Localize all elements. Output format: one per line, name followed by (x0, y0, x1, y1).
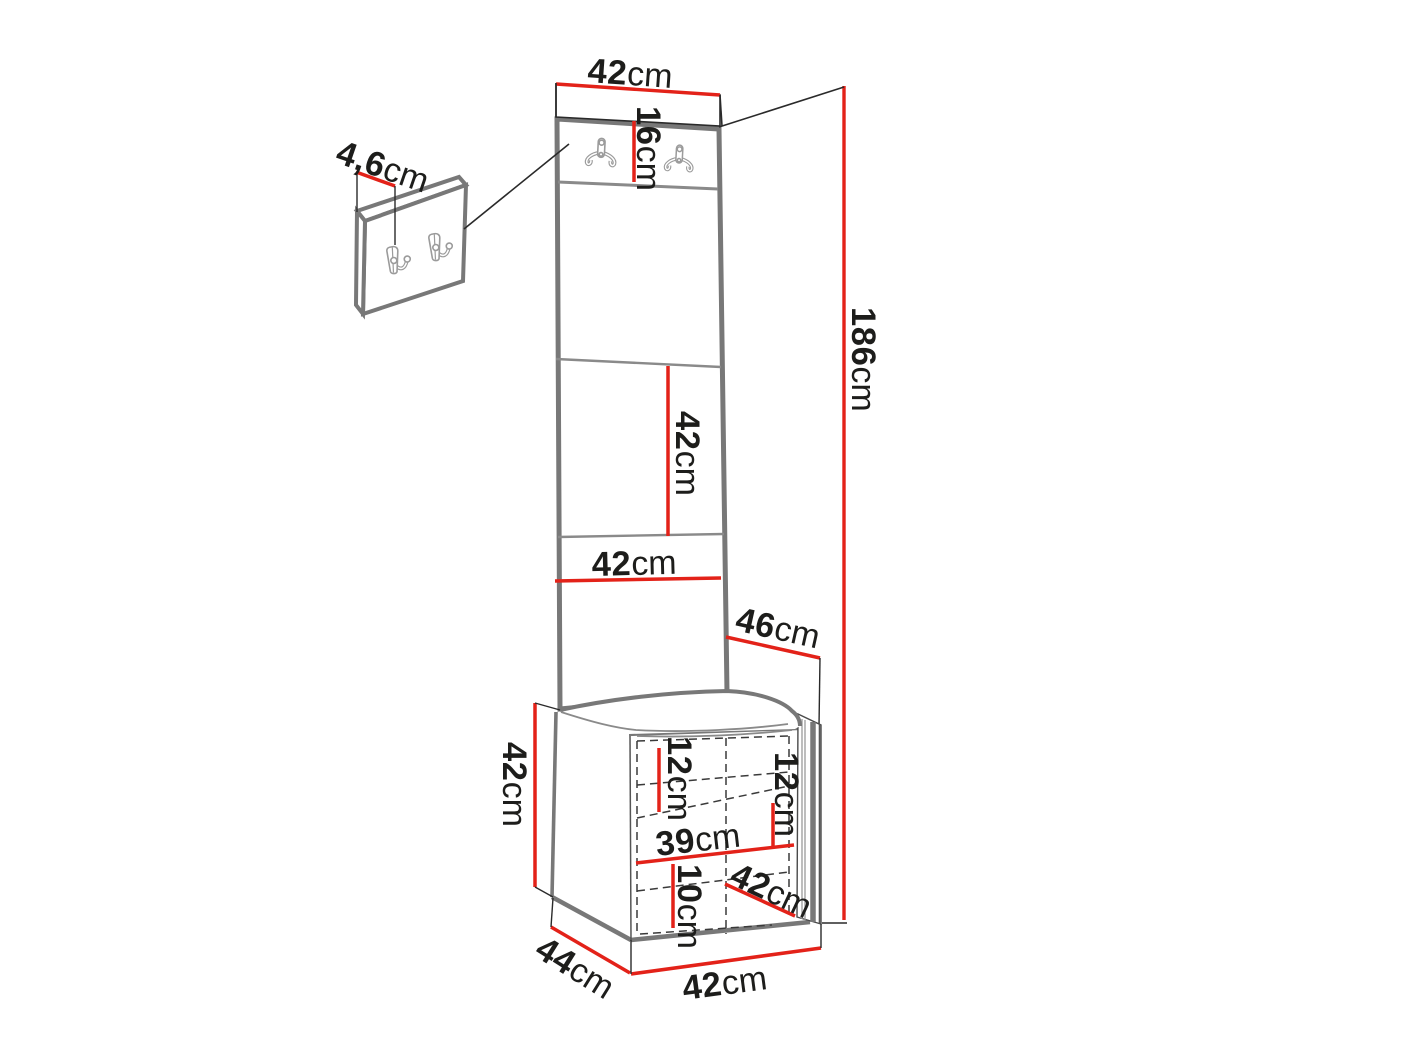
svg-text:16cm: 16cm (629, 106, 667, 191)
svg-text:42cm: 42cm (668, 411, 706, 496)
svg-text:12cm: 12cm (660, 736, 698, 821)
svg-text:12cm: 12cm (767, 752, 805, 837)
svg-text:42cm: 42cm (586, 52, 673, 96)
svg-text:186cm: 186cm (844, 307, 882, 412)
svg-text:42cm: 42cm (495, 742, 533, 827)
svg-text:42cm: 42cm (591, 544, 677, 584)
svg-text:10cm: 10cm (670, 864, 708, 949)
